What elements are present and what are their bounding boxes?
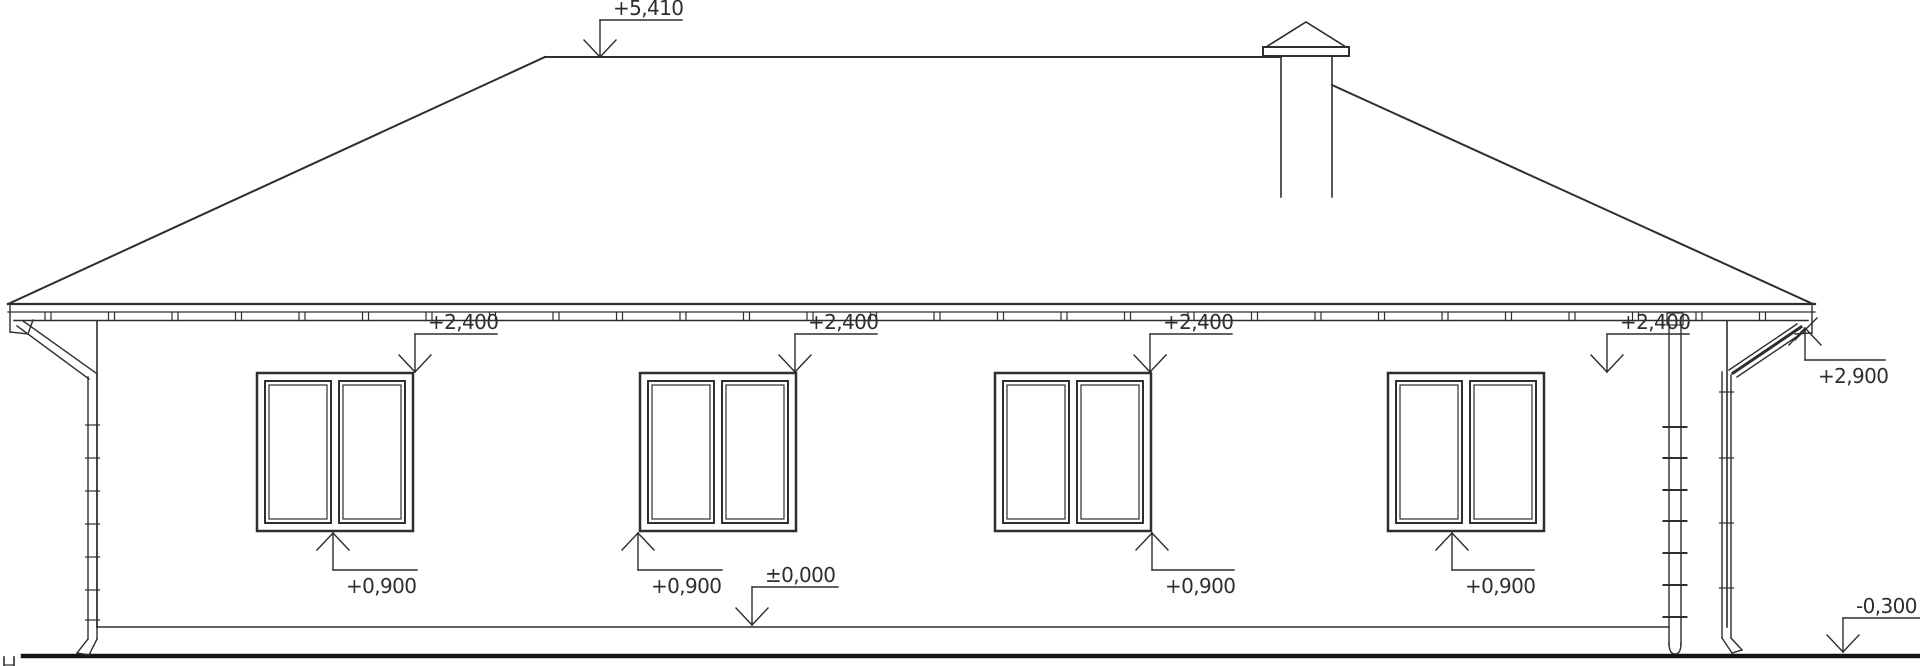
level-arrowhead [1452,533,1468,550]
window-2 [640,373,796,531]
windows [257,373,1544,531]
level-arrowhead [779,355,795,372]
rain-pipe-rounded-end [1669,643,1681,654]
level-arrowhead [1150,355,1166,372]
level-arrowhead [1843,635,1859,652]
chimney-cap-pyramid [1266,22,1346,47]
level-arrowhead [752,608,768,625]
gutter-ticks [45,313,1766,321]
window-1 [257,373,413,531]
downspout-right-corner [1720,324,1806,653]
elevation-value-label: +0,900 [1465,574,1535,598]
window-4 [1388,373,1544,531]
rain-pipe-brackets [1664,427,1687,617]
level-arrowhead [1827,635,1843,652]
level-arrowhead [399,355,415,372]
window-3 [995,373,1151,531]
window-outer-frame [1388,373,1544,531]
roof-outline [8,57,1815,304]
elevation-mark: +2,400 [1134,310,1233,372]
window-outer-frame [640,373,796,531]
level-arrowhead [333,533,349,550]
elevation-drawing: +5,410+2,400+2,400+2,400+2,400+2,900+0,9… [0,0,1920,666]
level-arrowhead [317,533,333,550]
level-arrowhead [1805,328,1821,345]
elevation-value-label: +2,400 [428,310,498,334]
chimney [1263,22,1349,197]
elevation-mark: +0,900 [1436,533,1535,598]
elevation-mark: -0,300 [1827,594,1920,652]
level-arrowhead [415,355,431,372]
elevation-value-label: -0,300 [1856,594,1917,618]
level-arrowhead [1134,355,1150,372]
level-arrowhead [795,355,811,372]
elevation-value-label: +5,410 [613,0,683,20]
elevation-mark: +2,400 [779,310,878,372]
elevation-mark: +0,900 [622,533,722,598]
chimney-cap-band [1263,47,1349,56]
corner-detail-bottom-left [4,657,14,666]
window-outer-frame [257,373,413,531]
elevation-value-label: +2,400 [808,310,878,334]
downspout-left-elbow-outer [17,326,89,379]
elevation-sheet: +5,410+2,400+2,400+2,400+2,400+2,900+0,9… [0,0,1920,666]
elevation-value-label: +0,900 [1165,574,1235,598]
downspout-right-elbow-outer [1729,324,1797,370]
elevation-mark: ±0,000 [736,563,838,625]
window-outer-frame [995,373,1151,531]
elevation-mark: +0,900 [1136,533,1235,598]
level-arrowhead [584,40,600,57]
elevation-value-label: +0,900 [346,574,416,598]
elevation-value-label: +2,400 [1163,310,1233,334]
roof-left-hip-line [8,57,545,304]
downspout-left-shoe [77,639,97,655]
level-arrowhead [1136,533,1152,550]
elevation-mark: +2,900 [1789,328,1888,388]
elevation-mark: +0,900 [317,533,417,598]
elevation-value-label: +2,400 [1620,310,1690,334]
elevation-value-label: +2,900 [1818,364,1888,388]
fascia-gutter [8,306,1817,340]
level-arrowhead [1152,533,1168,550]
level-arrowhead [736,608,752,625]
rain-pipe-bracketed [1664,313,1687,654]
downspout-right-shoe [1722,638,1742,653]
elevation-value-label: +0,900 [651,574,721,598]
downspout-right-elbow-core [1733,327,1801,373]
level-arrowhead [638,533,654,550]
elevation-mark: +2,400 [1591,310,1690,372]
elevation-mark: +2,400 [399,310,498,372]
elevation-marks: +5,410+2,400+2,400+2,400+2,400+2,900+0,9… [317,0,1920,652]
level-arrowhead [1591,355,1607,372]
elevation-value-label: ±0,000 [765,563,835,587]
level-arrowhead [622,533,638,550]
downspout-left-elbow-inner [23,321,96,373]
downspout-left [17,321,100,655]
level-arrowhead [1607,355,1623,372]
roof-right-hip-line [1332,85,1813,304]
level-arrowhead [1436,533,1452,550]
elevation-mark: +5,410 [584,0,683,57]
ground [4,656,1920,666]
level-arrowhead [600,40,616,57]
